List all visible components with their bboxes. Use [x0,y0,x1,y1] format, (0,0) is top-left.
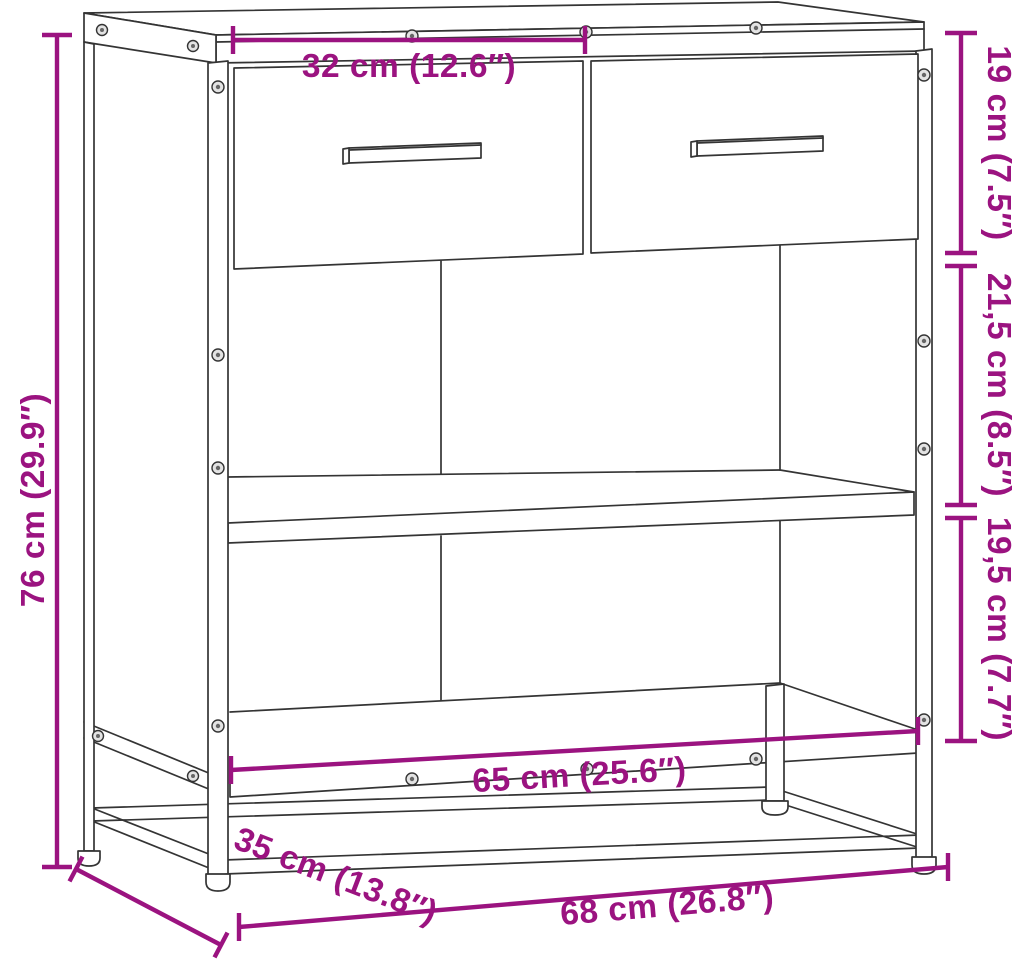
left-side-lower-rail [84,722,216,792]
label-lower-compartment-height: 19,5 cm (7.7″) [980,517,1016,741]
dimension-line-upper-compartment-height [945,266,977,505]
left-drawer [234,61,583,269]
front-left-post [206,61,230,891]
dimension-line-lower-compartment-height [945,518,977,741]
product-dimension-diagram: 32 cm (12.6″) 19 cm (7.5″) 21,5 cm (8.5″… [0,0,1016,963]
label-depth: 35 cm (13.8″) [229,821,442,932]
label-total-width: 68 cm (26.8″) [559,878,776,933]
middle-shelf [228,470,914,543]
sideboard-line-drawing: 32 cm (12.6″) 19 cm (7.5″) 21,5 cm (8.5″… [0,0,1016,963]
right-drawer [591,54,918,253]
cabinet-line-art [78,2,936,891]
label-drawer-width: 32 cm (12.6″) [302,48,516,85]
back-right-leg [762,684,788,815]
label-upper-compartment-height: 21,5 cm (8.5″) [980,273,1016,497]
dimension-line-depth [70,857,228,958]
label-total-height: 76 cm (29.9″) [15,393,52,607]
dimension-line-drawer-height [945,33,977,253]
label-drawer-height: 19 cm (7.5″) [980,45,1016,240]
